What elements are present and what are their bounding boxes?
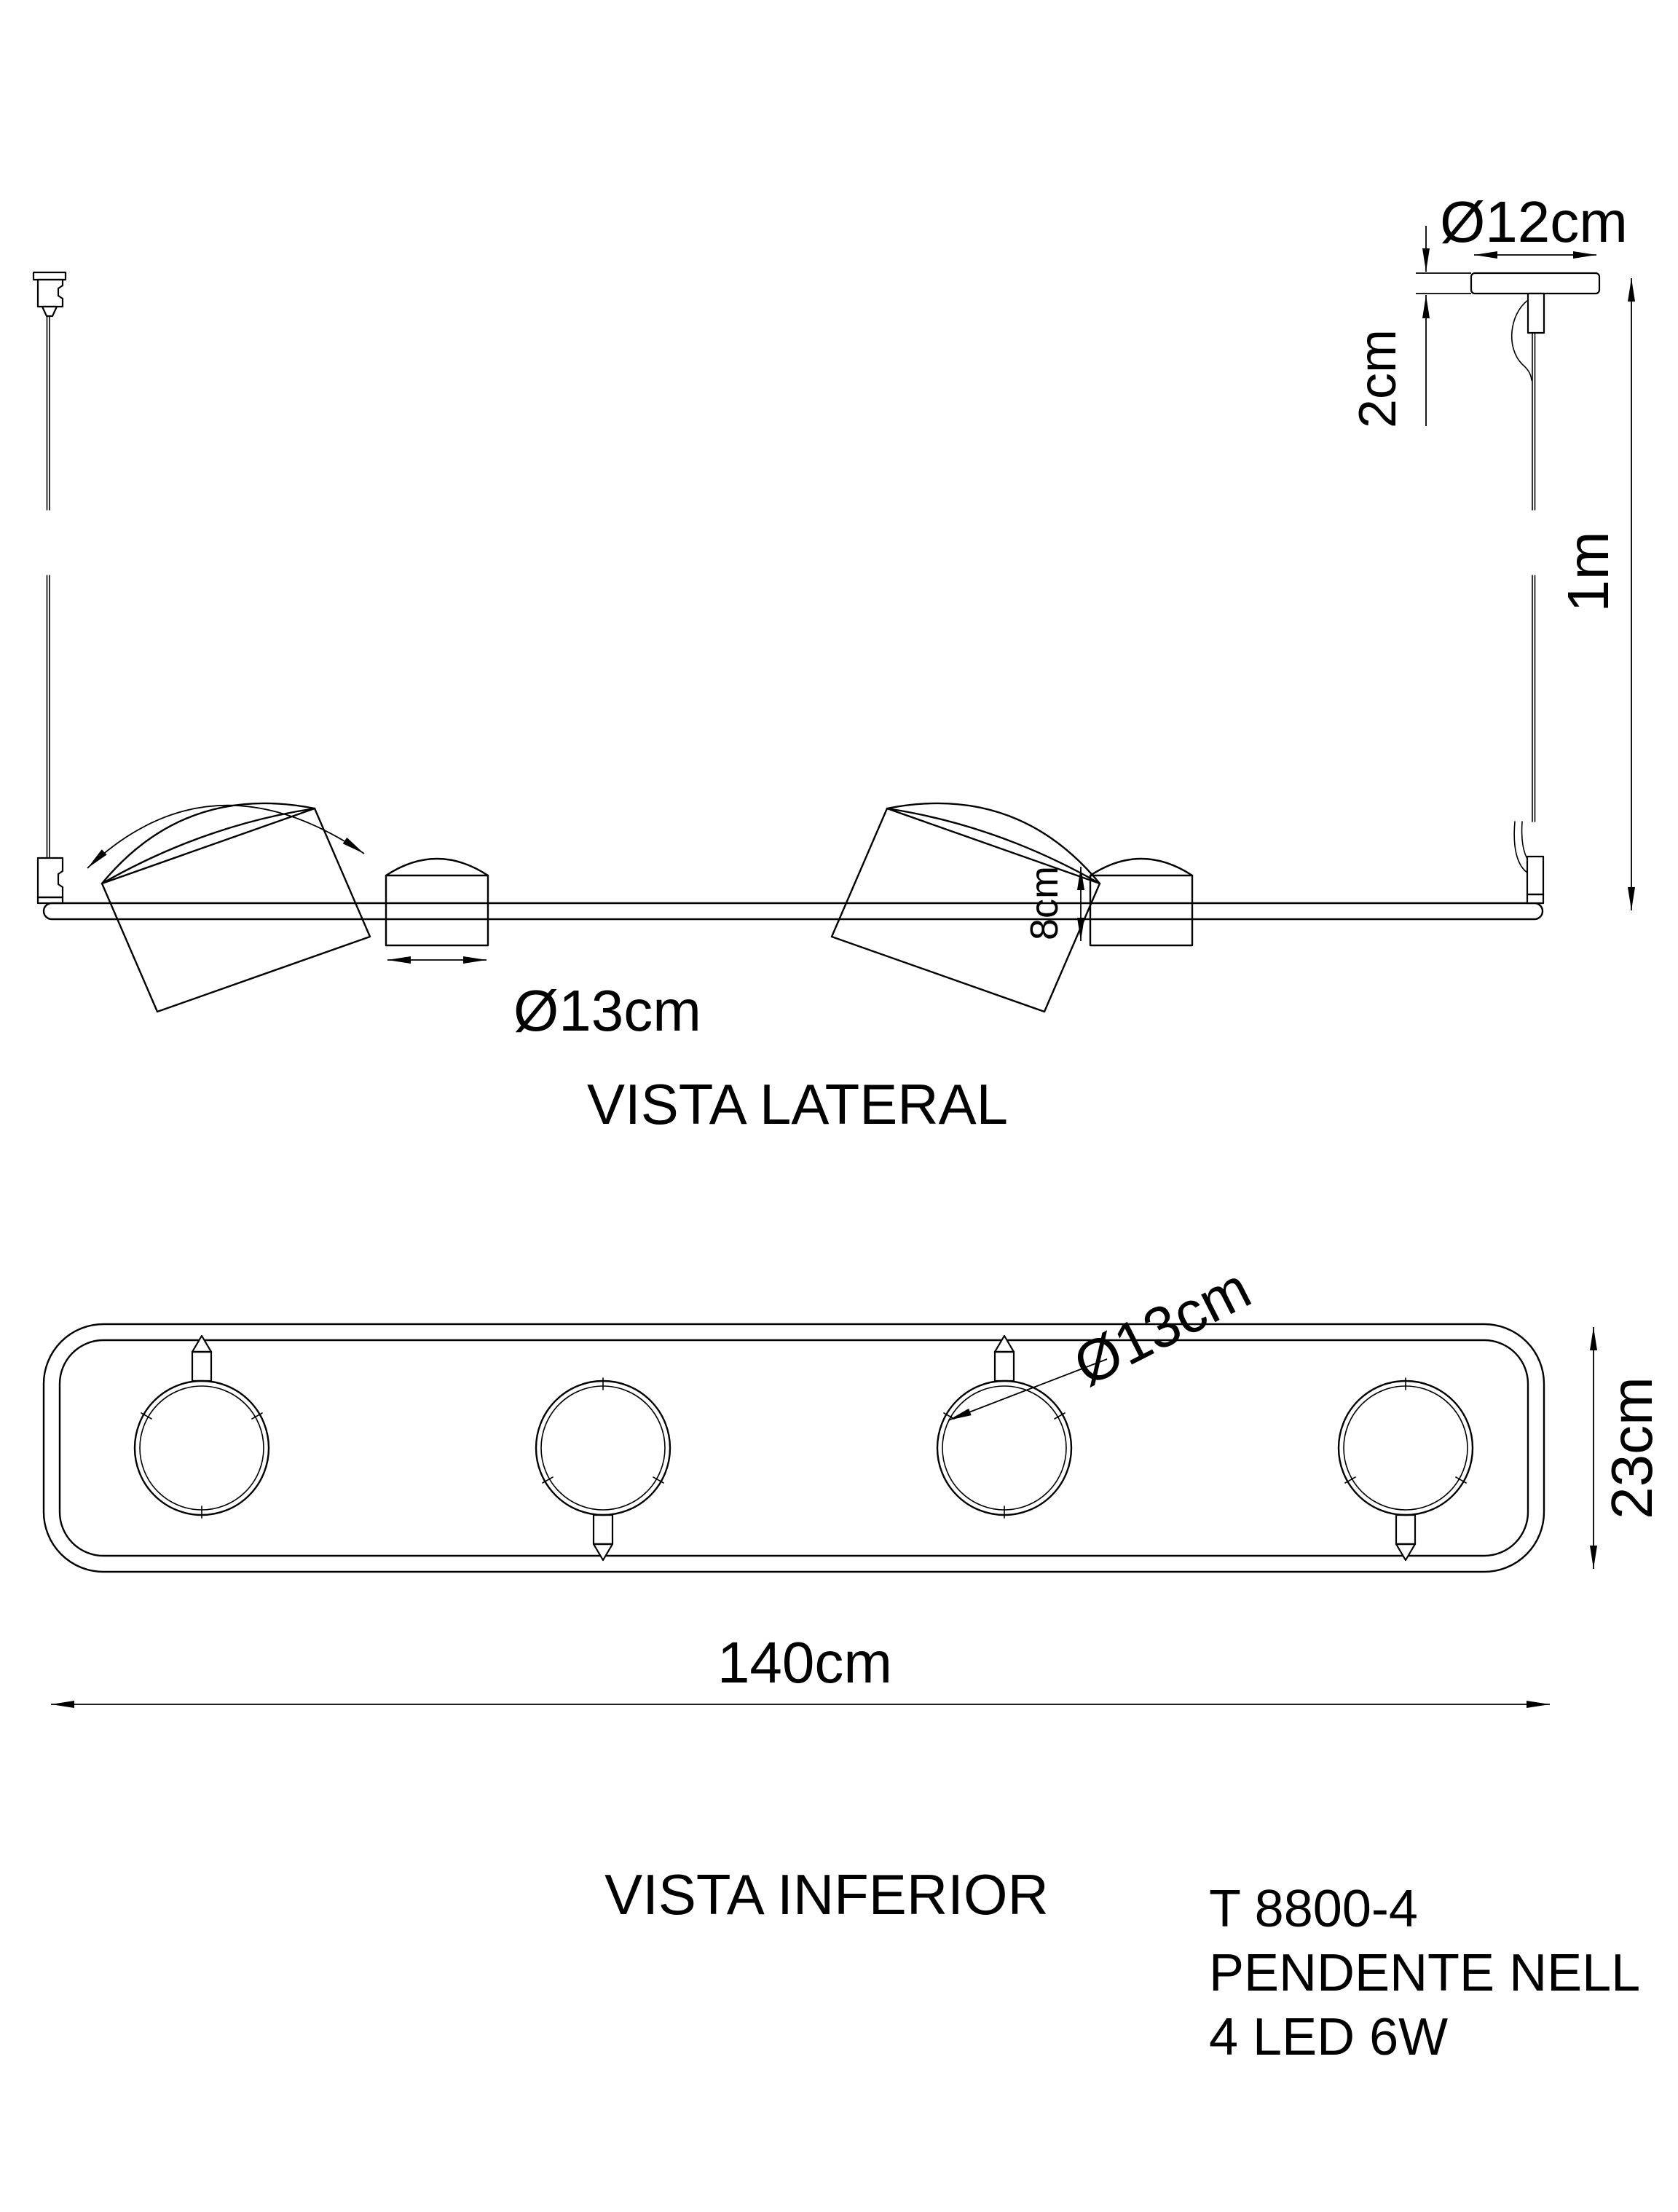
shade-diameter-bottom-label: Ø13cm: [1063, 1255, 1260, 1398]
dim-canopy-diameter: Ø12cm: [1440, 189, 1628, 255]
body-length-label: 140cm: [717, 1630, 892, 1695]
product-name: PENDENTE NELL: [1209, 1944, 1640, 2002]
canopy-diameter-label: Ø12cm: [1440, 189, 1628, 254]
dim-canopy-thickness: 2cm: [1349, 226, 1471, 428]
dim-shade-diameter-bottom: Ø13cm: [948, 1255, 1261, 1420]
lamp-head-2-upright: [386, 859, 488, 945]
technical-drawing-canvas: Ø12cm 2cm 1m Ø13cm 8cm VISTA LATERAL: [0, 0, 1678, 2212]
bottom-view: Ø13cm 23cm 140cm VISTA INFERIOR: [44, 1255, 1664, 1926]
shade-circle-1: [135, 1336, 269, 1518]
lamp-bar: [44, 903, 1543, 919]
shade-height-label: 8cm: [1023, 866, 1066, 940]
pendant-lamp-drawing: Ø12cm 2cm 1m Ø13cm 8cm VISTA LATERAL: [0, 0, 1678, 2212]
shade-circle-2: [536, 1378, 670, 1560]
head-rotation-arrow: [87, 806, 364, 868]
lamp-head-4-upright: [1090, 859, 1192, 945]
left-suspension-cable: [34, 272, 66, 903]
shade-2-stem: [594, 1515, 612, 1560]
dim-body-length: 140cm: [51, 1630, 1550, 1704]
side-view-label: VISTA LATERAL: [587, 1072, 1008, 1136]
side-view: Ø12cm 2cm 1m Ø13cm 8cm VISTA LATERAL: [34, 189, 1631, 1136]
left-connector-cone: [42, 307, 57, 316]
suspension-length-label: 1m: [1556, 531, 1620, 612]
bottom-view-label: VISTA INFERIOR: [604, 1862, 1049, 1926]
shade-circle-3: [937, 1336, 1071, 1518]
left-ceiling-connector: [38, 280, 63, 307]
shade-3-stem: [995, 1336, 1014, 1381]
dim-shade-diameter-side: Ø13cm: [387, 960, 701, 1043]
title-block: T 8800-4 PENDENTE NELL 4 LED 6W: [1209, 1880, 1640, 2066]
shade-circle-4: [1339, 1378, 1473, 1560]
left-bar-connector: [38, 858, 63, 903]
canopy-stem: [1528, 294, 1544, 333]
shade-diameter-side-label: Ø13cm: [513, 978, 701, 1043]
lamp-head-1-tilted: [102, 803, 370, 1012]
right-bar-connector: [1527, 857, 1543, 903]
canopy-thickness-label: 2cm: [1349, 329, 1407, 428]
body-depth-label: 23cm: [1599, 1377, 1664, 1519]
body-inner-outline: [60, 1340, 1528, 1556]
dim-body-depth: 23cm: [1594, 1327, 1664, 1569]
product-lamps: 4 LED 6W: [1209, 2008, 1448, 2066]
ceiling-canopy: [1471, 273, 1599, 294]
product-model: T 8800-4: [1209, 1880, 1418, 1938]
left-ceiling-flange: [34, 272, 66, 280]
shade-4-stem: [1396, 1515, 1415, 1560]
shade-1-stem: [192, 1336, 211, 1381]
dim-suspension-length: 1m: [1556, 278, 1631, 910]
